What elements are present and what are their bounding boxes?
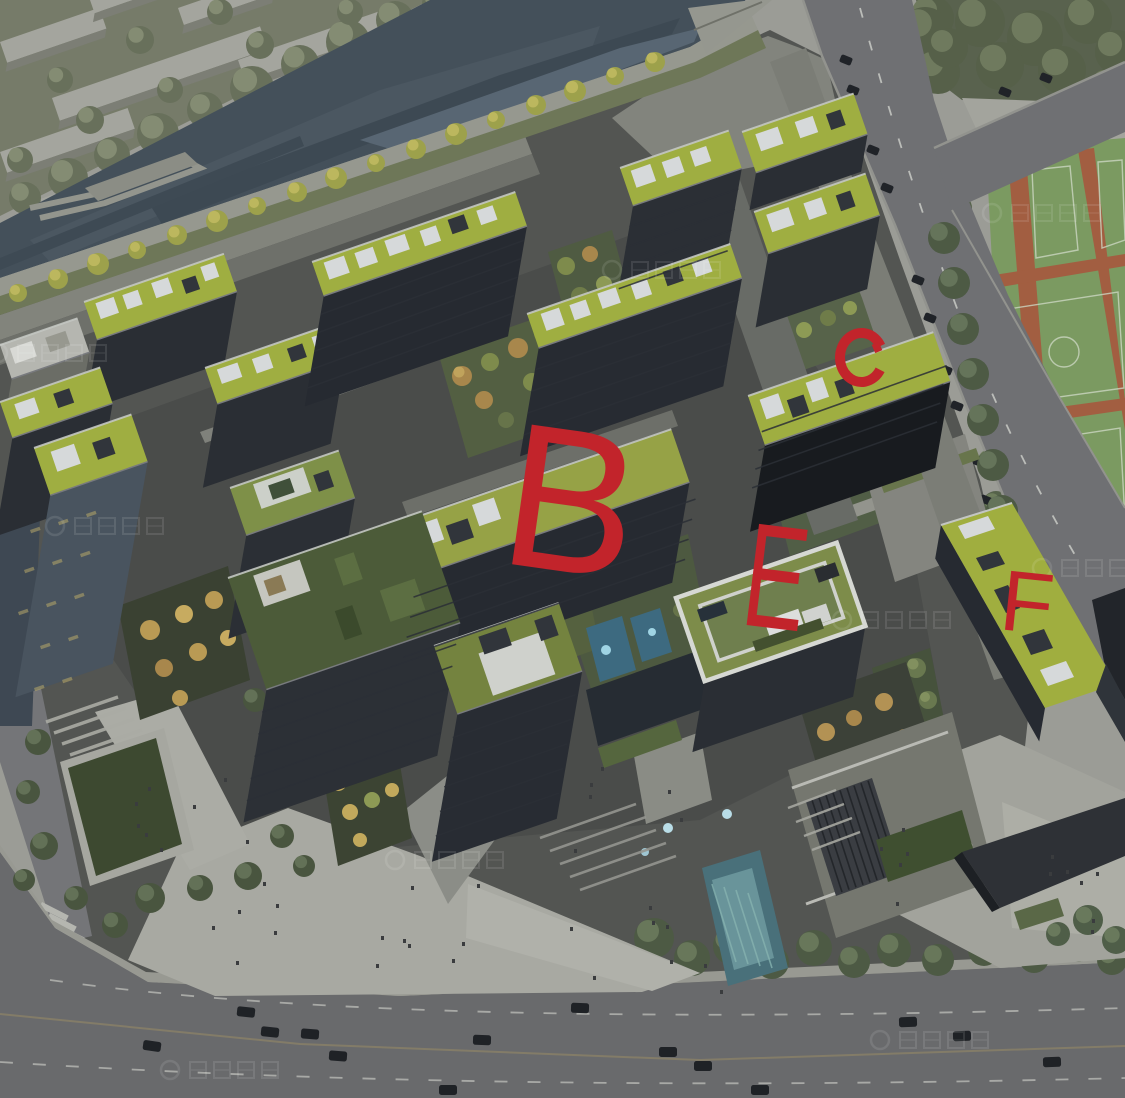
svg-text:F: F [996, 552, 1058, 653]
